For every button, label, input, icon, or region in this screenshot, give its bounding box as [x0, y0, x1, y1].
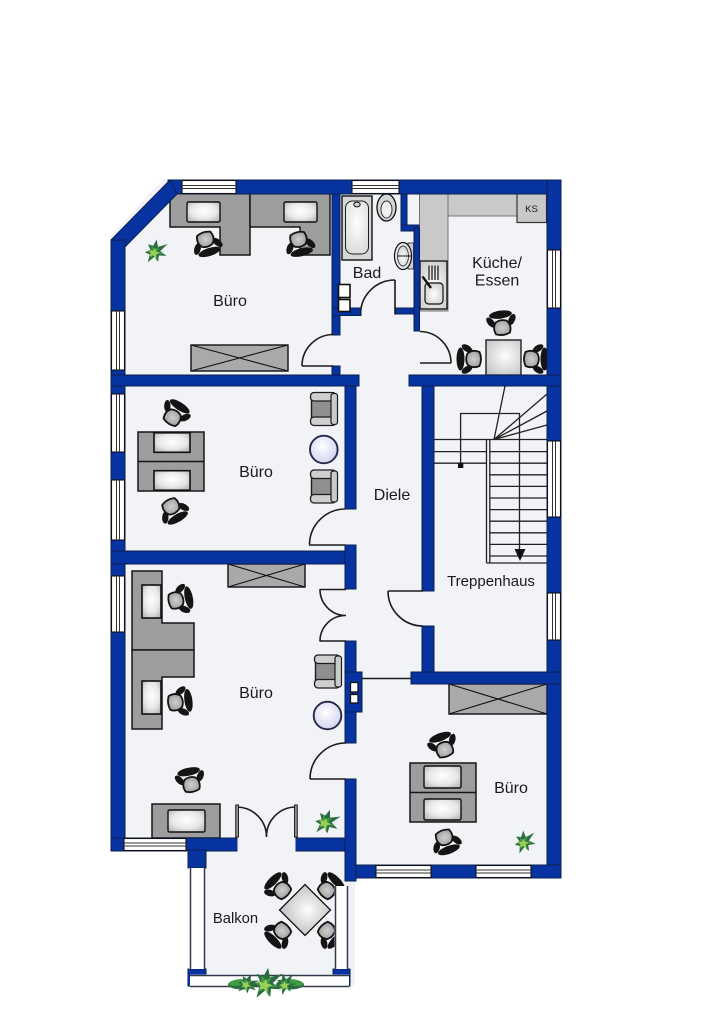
svg-text:Treppenhaus: Treppenhaus	[447, 573, 535, 590]
svg-text:Büro: Büro	[213, 293, 247, 310]
svg-text:KS: KS	[525, 204, 538, 215]
svg-text:Büro: Büro	[494, 780, 528, 797]
svg-text:Büro: Büro	[239, 464, 273, 481]
svg-text:Bad: Bad	[353, 265, 381, 282]
svg-text:Balkon: Balkon	[213, 911, 258, 927]
svg-text:Essen: Essen	[475, 273, 519, 290]
svg-text:Küche/: Küche/	[472, 255, 522, 272]
svg-text:Diele: Diele	[374, 487, 411, 504]
svg-text:Büro: Büro	[239, 685, 273, 702]
